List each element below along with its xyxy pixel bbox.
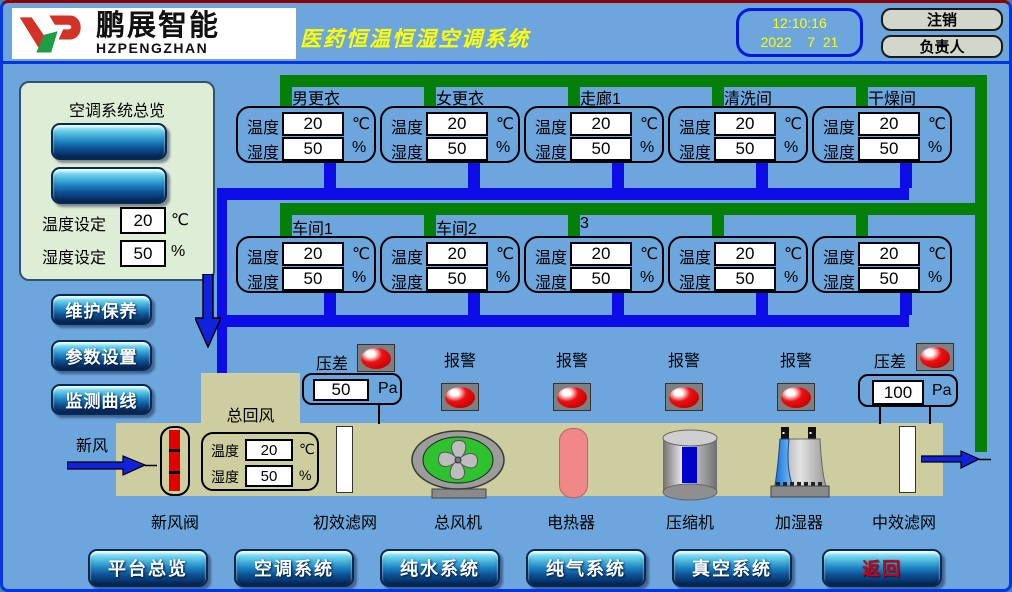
pressure-left-label: 压差 [316,350,348,374]
pressure-left-box: 50 Pa [302,373,402,405]
room-humi-label: 湿度 [823,269,855,293]
company-name-en: HZPENGZHAN [96,41,220,55]
ahu-component-label: 中效滤网 [872,509,936,533]
page-title: 医药恒温恒湿空调系统 [300,23,530,53]
supply-branch-pipe [712,215,724,236]
room-humi-label: 湿度 [535,269,567,293]
room-temp-value: 20 [282,242,344,266]
header-divider [3,61,1009,64]
return-branch-pipe [756,293,768,315]
room-temp-value: 20 [570,112,632,136]
pressure-right-alarm-lamp [916,343,954,371]
supply-branch-pipe [280,87,292,106]
room-name-label: 3 [580,215,589,233]
nav-button-2[interactable]: 空调系统 [234,549,354,587]
alarm-lamp [665,383,703,411]
supply-trunk-row2 [280,203,987,215]
nav-button-3[interactable]: 纯水系统 [380,549,500,587]
fresh-air-damper[interactable] [160,426,190,496]
return-air-label: 总回风 [201,402,300,426]
alarm-label: 报警 [556,347,588,371]
room-humi-label: 湿度 [247,139,279,163]
compressor-icon[interactable] [660,429,720,501]
return-branch-pipe [468,293,480,315]
return-branch-pipe [756,163,768,188]
room-temp-unit: ℃ [352,114,370,134]
room-temp-unit: ℃ [784,114,802,134]
room-humi-unit: % [640,139,654,157]
supply-branch-pipe [568,87,580,106]
alarm-bulb-icon [557,387,587,408]
ahu-component-label: 新风阀 [151,509,199,533]
monitor-curve-button[interactable]: 监测曲线 [51,384,152,415]
ahu-component-label: 压缩机 [666,509,714,533]
room-panel: 温度20℃湿度50% [812,106,952,163]
room-temp-unit: ℃ [640,114,658,134]
clock-display: 12:10:16 2022 7 21 [736,8,863,57]
return-trunk-row1 [217,188,909,200]
room-humi-value: 50 [714,267,776,291]
ahu-component-label: 加湿器 [775,509,823,533]
ahu-component-label: 电热器 [547,509,595,533]
alarm-label: 报警 [780,347,812,371]
room-panel: 温度20℃湿度50% [668,106,808,163]
parameter-settings-button[interactable]: 参数设置 [51,340,152,371]
alarm-lamp [441,383,479,411]
supply-riser-right [975,75,987,452]
supply-branch-pipe [568,215,580,236]
company-name-cn: 鹏展智能 [96,12,220,41]
duct-temp-unit: ℃ [299,441,315,458]
pressure-left-value: 50 [313,379,369,401]
return-branch-pipe [324,163,336,188]
clock-time: 12:10:16 [739,15,860,31]
supply-branch-pipe [712,87,724,106]
logout-button[interactable]: 注销 [881,8,1003,31]
room-humi-label: 湿度 [391,269,423,293]
supply-branch-pipe [280,215,292,236]
pressure-left-alarm-lamp [357,344,395,372]
return-branch-pipe [324,293,336,315]
room-temp-value: 20 [714,242,776,266]
pressure-right-box: 100 Pa [858,374,958,407]
room-temp-label: 温度 [823,244,855,268]
return-trunk-row2 [217,315,909,327]
primary-filter [336,426,353,493]
room-humi-unit: % [784,269,798,287]
medium-filter [899,426,916,493]
duct-temp-value: 20 [245,439,293,461]
room-humi-value: 50 [282,267,344,291]
room-humi-value: 50 [426,267,488,291]
ahu-component-label: 总风机 [434,509,482,533]
logo-mark-icon [16,11,90,57]
room-humi-unit: % [496,269,510,287]
room-humi-value: 50 [570,137,632,161]
room-temp-value: 20 [426,242,488,266]
nav-button-6[interactable]: 返回 [822,549,942,587]
supply-branch-pipe [856,215,868,236]
duct-humi-value: 50 [245,465,293,487]
duct-humi-unit: % [299,467,311,483]
room-panel: 温度20℃湿度50% [236,106,376,163]
humi-setpoint-label: 湿度设定 [42,244,106,268]
humi-setpoint-input[interactable]: 50 [120,240,166,267]
temp-setpoint-label: 温度设定 [42,211,106,235]
ahu-component-label: 初效滤网 [313,509,377,533]
room-humi-unit: % [640,269,654,287]
humidifier-icon[interactable] [768,427,832,501]
alarm-lamp [553,383,591,411]
company-logo: 鹏展智能 HZPENGZHAN [11,7,297,60]
room-temp-label: 温度 [247,244,279,268]
return-branch-pipe [612,163,624,188]
room-humi-value: 50 [570,267,632,291]
alarm-bulb-icon [669,387,699,408]
nav-button-1[interactable]: 平台总览 [88,549,208,587]
room-temp-unit: ℃ [496,244,514,264]
room-temp-unit: ℃ [928,114,946,134]
overview-panel: 空调系统总览 温度设定 20 ℃ 湿度设定 50 % [19,81,215,281]
return-branch-pipe [900,163,912,188]
room-humi-unit: % [928,139,942,157]
room-temp-label: 温度 [679,114,711,138]
alarm-label: 报警 [668,347,700,371]
overview-button-2[interactable] [51,167,167,204]
pressure-right-sensor-line-2 [929,407,931,424]
room-humi-label: 湿度 [247,269,279,293]
room-panel: 温度20℃湿度50% [380,106,520,163]
main-fan-icon[interactable] [408,429,508,499]
return-branch-pipe [468,163,480,188]
room-temp-label: 温度 [535,114,567,138]
room-temp-label: 温度 [391,114,423,138]
room-humi-label: 湿度 [391,139,423,163]
pressure-right-sensor-line-1 [879,407,881,424]
room-temp-value: 20 [858,112,920,136]
room-temp-label: 温度 [535,244,567,268]
room-panel: 温度20℃湿度50% [236,236,376,293]
room-panel: 温度20℃湿度50% [812,236,952,293]
supply-branch-pipe [424,87,436,106]
room-temp-unit: ℃ [352,244,370,264]
alarm-bulb-icon [781,387,811,408]
alarm-bulb-icon [920,347,950,368]
room-temp-value: 20 [570,242,632,266]
role-button[interactable]: 负责人 [881,35,1003,58]
room-temp-label: 温度 [247,114,279,138]
alarm-lamp [777,383,815,411]
return-branch-pipe [612,293,624,315]
room-panel: 温度20℃湿度50% [524,106,664,163]
room-temp-label: 温度 [679,244,711,268]
room-temp-unit: ℃ [784,244,802,264]
overview-button-1[interactable] [51,123,167,160]
room-humi-value: 50 [714,137,776,161]
room-temp-unit: ℃ [496,114,514,134]
supply-branch-pipe [424,215,436,236]
room-humi-unit: % [352,139,366,157]
room-temp-unit: ℃ [928,244,946,264]
room-temp-value: 20 [282,112,344,136]
maintenance-button[interactable]: 维护保养 [51,294,152,325]
room-temp-unit: ℃ [640,244,658,264]
return-flow-down-arrow-icon [195,274,221,348]
duct-temp-label: 温度 [211,441,239,461]
room-humi-unit: % [496,139,510,157]
room-humi-value: 50 [858,137,920,161]
duct-conditions-panel: 温度 20 ℃ 湿度 50 % [201,432,319,491]
room-temp-value: 20 [858,242,920,266]
room-humi-value: 50 [426,137,488,161]
duct-humi-label: 湿度 [211,467,239,487]
room-temp-label: 温度 [391,244,423,268]
room-humi-value: 50 [858,267,920,291]
nav-button-4[interactable]: 纯气系统 [526,549,646,587]
room-temp-label: 温度 [823,114,855,138]
alarm-bulb-icon [361,348,391,369]
pressure-right-value: 100 [872,380,924,405]
room-temp-value: 20 [426,112,488,136]
fresh-air-arrow-icon [67,455,157,477]
return-branch-pipe [900,293,912,315]
alarm-bulb-icon [445,387,475,408]
room-panel: 温度20℃湿度50% [524,236,664,293]
room-humi-label: 湿度 [679,269,711,293]
room-panel: 温度20℃湿度50% [380,236,520,293]
electric-heater-icon[interactable] [559,428,588,498]
room-humi-unit: % [352,269,366,287]
pressure-left-sensor-line [378,405,380,424]
temp-setpoint-unit: ℃ [171,210,189,230]
room-panel: 温度20℃湿度50% [668,236,808,293]
room-humi-label: 湿度 [679,139,711,163]
overview-panel-title: 空调系统总览 [21,97,213,121]
fresh-air-label: 新风 [76,432,108,456]
pressure-right-unit: Pa [932,382,952,400]
room-temp-value: 20 [714,112,776,136]
pressure-left-unit: Pa [378,380,398,398]
damper-blades-icon [169,430,180,491]
humi-setpoint-unit: % [171,243,185,261]
clock-date: 2022 7 21 [739,34,860,50]
supply-branch-pipe [856,87,868,106]
alarm-label: 报警 [444,347,476,371]
hmi-screen: 鹏展智能 HZPENGZHAN 医药恒温恒湿空调系统 12:10:16 2022… [0,0,1012,592]
nav-button-5[interactable]: 真空系统 [672,549,792,587]
room-humi-unit: % [928,269,942,287]
room-humi-value: 50 [282,137,344,161]
room-humi-label: 湿度 [535,139,567,163]
room-humi-label: 湿度 [823,139,855,163]
room-humi-unit: % [784,139,798,157]
pressure-right-label: 压差 [874,348,906,372]
temp-setpoint-input[interactable]: 20 [120,207,166,234]
supply-air-arrow-icon [921,450,991,470]
